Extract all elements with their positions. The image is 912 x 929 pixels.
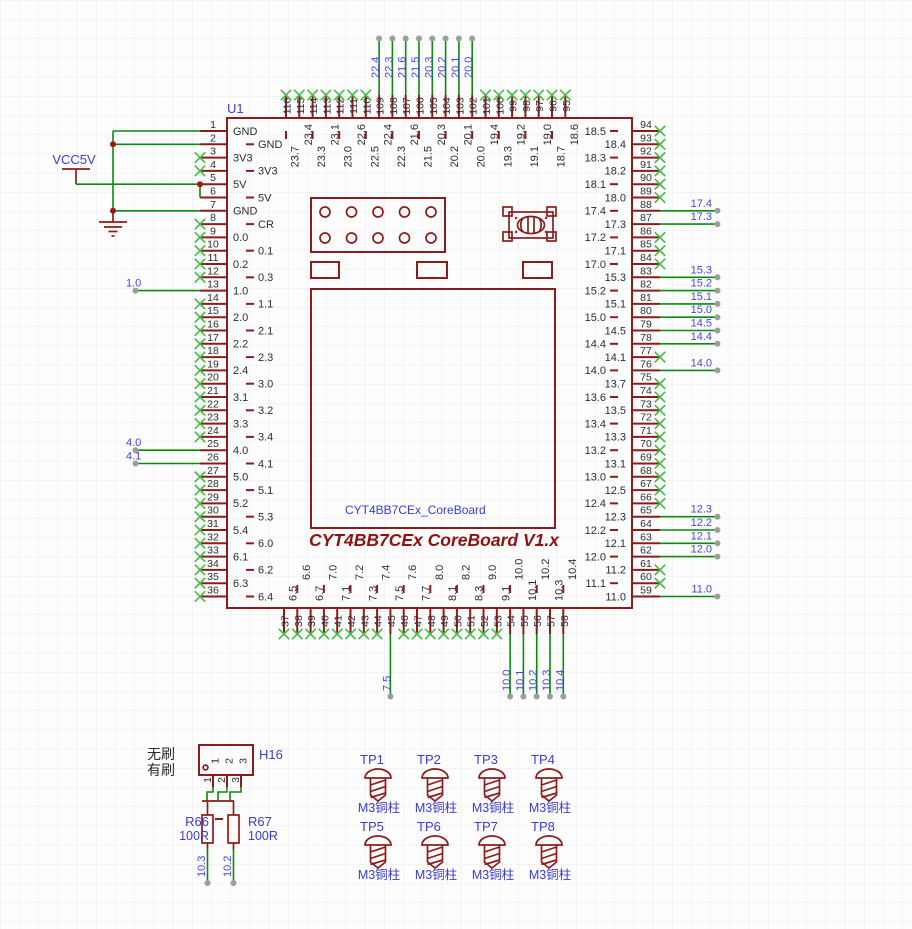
pin-name: 15.2 bbox=[585, 285, 606, 297]
wire-end-dot bbox=[416, 36, 422, 42]
pin-name: 20.0 bbox=[476, 146, 488, 167]
pin-number: 61 bbox=[640, 558, 652, 570]
pin-number: 78 bbox=[640, 332, 652, 344]
pin-number: 6 bbox=[210, 186, 216, 198]
pin-name: 17.2 bbox=[585, 232, 606, 244]
pin-number: 15 bbox=[207, 305, 219, 317]
pin-number: 28 bbox=[207, 478, 219, 490]
net-label-12.2: 12.2 bbox=[691, 517, 712, 529]
testpoint-ref: TP1 bbox=[360, 752, 384, 767]
pin-number: 92 bbox=[640, 146, 652, 158]
pin-name: 12.1 bbox=[605, 538, 626, 550]
pin-name: 0.2 bbox=[233, 259, 248, 271]
pin-name: CR bbox=[258, 219, 274, 231]
pin-number: 105 bbox=[428, 97, 440, 115]
pin-number: 100 bbox=[494, 97, 506, 115]
testpoint-ref: TP7 bbox=[474, 819, 498, 834]
pin-number: 23 bbox=[207, 412, 219, 424]
pin-name: 18.0 bbox=[605, 192, 626, 204]
pin-name: 13.2 bbox=[585, 445, 606, 457]
pin-number: 91 bbox=[640, 159, 652, 171]
pin-name: 18.1 bbox=[585, 179, 606, 191]
pin-number: 84 bbox=[640, 252, 652, 264]
pin-name: 19.3 bbox=[502, 146, 514, 167]
pin-name: 23.7 bbox=[290, 146, 302, 167]
pin-number: 16 bbox=[207, 319, 219, 331]
pin-number: 87 bbox=[640, 212, 652, 224]
pin-number: 96 bbox=[548, 100, 560, 112]
pin-number: 50 bbox=[452, 615, 464, 627]
pin-name: 7.0 bbox=[327, 565, 339, 580]
pin-number: 1 bbox=[210, 119, 216, 131]
testpoint-value: M3铜柱 bbox=[472, 800, 514, 815]
pin-number: 37 bbox=[280, 615, 292, 627]
net-label-14.5: 14.5 bbox=[691, 318, 712, 330]
wire-end-dot bbox=[387, 694, 393, 700]
wire-end-dot bbox=[715, 288, 721, 294]
pin-name: 2.0 bbox=[233, 312, 248, 324]
pin-number: 113 bbox=[321, 97, 333, 114]
pin-name: 15.3 bbox=[605, 272, 626, 284]
wire-end-dot bbox=[715, 554, 721, 560]
pin-name: 12.5 bbox=[605, 485, 626, 497]
pin-number: 41 bbox=[333, 615, 345, 627]
pin-name: GND bbox=[233, 126, 258, 138]
net-label-17.3: 17.3 bbox=[691, 211, 712, 223]
wire-end-dot bbox=[715, 301, 721, 307]
pin-number: 107 bbox=[401, 97, 413, 115]
pin-name: 7.6 bbox=[407, 565, 419, 580]
pin-name: 0.3 bbox=[258, 272, 273, 284]
net-label-10.2: 10.2 bbox=[528, 670, 540, 691]
chip-ref[interactable]: U1 bbox=[227, 101, 244, 116]
pin-number: 80 bbox=[640, 305, 652, 317]
wire-end-dot bbox=[520, 694, 526, 700]
pin-number: 13 bbox=[207, 279, 219, 291]
schematic-sheet: 1GND2GND33V343V355V65V7GND8CR90.0100.111… bbox=[0, 0, 912, 929]
resistor-ref: R66 bbox=[185, 814, 209, 829]
connector-pin-name: 3 bbox=[238, 758, 250, 764]
wire-end-dot bbox=[715, 514, 721, 520]
pin-number: 75 bbox=[640, 372, 652, 384]
pin-name: 13.6 bbox=[585, 392, 606, 404]
pin-number: 66 bbox=[640, 491, 652, 503]
pin-name: 6.4 bbox=[258, 591, 273, 603]
chip-title: CYT4BB7CEx CoreBoard V1.x bbox=[309, 530, 560, 550]
net-label-20.1: 20.1 bbox=[450, 57, 462, 78]
pin-name: 14.5 bbox=[605, 325, 626, 337]
testpoint-ref: TP6 bbox=[417, 819, 441, 834]
pin-number: 44 bbox=[373, 615, 385, 627]
pin-name: 2.1 bbox=[258, 325, 273, 337]
pin-name: 13.7 bbox=[605, 379, 626, 391]
pin-number: 89 bbox=[640, 186, 652, 198]
pin-number: 35 bbox=[207, 571, 219, 583]
resistor-ref: R67 bbox=[248, 814, 272, 829]
pin-number: 51 bbox=[466, 615, 478, 627]
pin-number: 74 bbox=[640, 385, 652, 397]
pin-name: 15.0 bbox=[585, 312, 606, 324]
pin-number: 4 bbox=[210, 159, 216, 171]
pin-number: 9 bbox=[210, 225, 216, 237]
pin-number: 101 bbox=[481, 97, 493, 115]
pin-name: 10.0 bbox=[514, 559, 526, 580]
pin-name: 12.2 bbox=[585, 525, 606, 537]
pin-number: 65 bbox=[640, 505, 652, 517]
pin-name: 22.5 bbox=[369, 146, 381, 167]
pin-number: 5 bbox=[210, 172, 216, 184]
pin-name: 5V bbox=[233, 179, 247, 191]
pin-number: 36 bbox=[207, 585, 219, 597]
pin-name: 21.5 bbox=[423, 146, 435, 167]
pin-number: 34 bbox=[207, 558, 219, 570]
pin-name: 17.3 bbox=[605, 219, 626, 231]
net-label-20.0: 20.0 bbox=[463, 57, 475, 78]
pin-name: 14.1 bbox=[605, 352, 626, 364]
wire-end-dot bbox=[715, 328, 721, 334]
pin-name: 10.4 bbox=[567, 559, 579, 580]
net-label-21.5: 21.5 bbox=[410, 57, 422, 78]
net-label-15.2: 15.2 bbox=[691, 278, 712, 290]
pin-name: 12.0 bbox=[585, 551, 606, 563]
pin-name: 5.3 bbox=[258, 512, 273, 524]
pin-name: 3.2 bbox=[258, 405, 273, 417]
testpoint-value: M3铜柱 bbox=[415, 867, 457, 882]
wire-end-dot bbox=[715, 208, 721, 214]
pin-name: 3V3 bbox=[233, 152, 253, 164]
net-label-10.4: 10.4 bbox=[554, 670, 566, 691]
pin-number: 110 bbox=[361, 97, 373, 114]
connector-pin-name: 2 bbox=[224, 758, 236, 764]
wire-end-dot bbox=[547, 694, 553, 700]
testpoint-ref: TP3 bbox=[474, 752, 498, 767]
pin-number: 30 bbox=[207, 505, 219, 517]
pin-number: 59 bbox=[640, 585, 652, 597]
pin-number: 108 bbox=[388, 97, 400, 115]
net-label-11.0: 11.0 bbox=[691, 584, 712, 596]
pin-number: 109 bbox=[375, 97, 387, 115]
connector-pin-number: 3 bbox=[230, 777, 242, 783]
pin-number: 33 bbox=[207, 545, 219, 557]
pin-number: 81 bbox=[640, 292, 652, 304]
pin-name: 0.0 bbox=[233, 232, 248, 244]
pin-name: 18.4 bbox=[605, 139, 626, 151]
pin-name: 23.0 bbox=[343, 146, 355, 167]
pin-number: 21 bbox=[207, 385, 219, 397]
pin-number: 115 bbox=[295, 97, 307, 114]
pin-name: 18.6 bbox=[569, 124, 581, 145]
pin-number: 94 bbox=[640, 119, 652, 131]
pin-number: 99 bbox=[508, 100, 520, 112]
pin-name: 10.2 bbox=[540, 559, 552, 580]
wire-end-dot bbox=[715, 221, 721, 227]
pin-name: 0.1 bbox=[258, 246, 273, 258]
pin-number: 102 bbox=[468, 97, 480, 115]
pin-name: 8.0 bbox=[434, 565, 446, 580]
wire-end-dot bbox=[205, 880, 211, 886]
pin-number: 14 bbox=[207, 292, 219, 304]
pin-name: 17.0 bbox=[585, 259, 606, 271]
wire-end-dot bbox=[715, 341, 721, 347]
pin-name: 3.3 bbox=[233, 418, 248, 430]
pin-name: 1.0 bbox=[233, 285, 248, 297]
pin-number: 111 bbox=[348, 98, 360, 114]
pin-number: 53 bbox=[492, 615, 504, 627]
testpoint-ref: TP2 bbox=[417, 752, 441, 767]
pin-name: 14.4 bbox=[585, 339, 606, 351]
pin-name: 12.4 bbox=[585, 498, 606, 510]
pin-number: 39 bbox=[306, 615, 318, 627]
pin-number: 85 bbox=[640, 239, 652, 251]
pin-number: 3 bbox=[210, 146, 216, 158]
pin-name: 5.4 bbox=[233, 525, 248, 537]
wire-end-dot bbox=[469, 36, 475, 42]
pin-name: 17.1 bbox=[605, 246, 626, 258]
pin-name: 2.3 bbox=[258, 352, 273, 364]
testpoint-value: M3铜柱 bbox=[358, 800, 400, 815]
pin-number: 67 bbox=[640, 478, 652, 490]
connector-pin-number: 1 bbox=[202, 777, 214, 783]
pin-number: 95 bbox=[561, 100, 573, 112]
pin-number: 114 bbox=[308, 97, 320, 114]
pin-number: 83 bbox=[640, 265, 652, 277]
pin-name: 13.5 bbox=[605, 405, 626, 417]
pin-number: 63 bbox=[640, 531, 652, 543]
chip-inner-label: CYT4BB7CEx_CoreBoard bbox=[345, 503, 486, 517]
pin-name: 7.2 bbox=[354, 565, 366, 580]
connector-ref[interactable]: H16 bbox=[259, 747, 283, 762]
pin-number: 71 bbox=[640, 425, 652, 437]
pin-number: 24 bbox=[207, 425, 219, 437]
pin-name: 18.5 bbox=[585, 126, 606, 138]
pin-name: 11.2 bbox=[605, 565, 626, 577]
testpoint-value: M3铜柱 bbox=[529, 867, 571, 882]
pin-number: 32 bbox=[207, 531, 219, 543]
pin-number: 22 bbox=[207, 398, 219, 410]
pin-name: 13.3 bbox=[605, 432, 626, 444]
net-label-14.4: 14.4 bbox=[691, 331, 712, 343]
pin-name: 2.2 bbox=[233, 339, 248, 351]
wire-end-dot bbox=[389, 36, 395, 42]
pin-name: 19.1 bbox=[529, 146, 541, 167]
net-label-7.5: 7.5 bbox=[381, 676, 393, 691]
pin-number: 58 bbox=[559, 615, 571, 627]
pin-name: 1.1 bbox=[258, 299, 273, 311]
pin-number: 86 bbox=[640, 225, 652, 237]
net-label-15.1: 15.1 bbox=[691, 291, 712, 303]
pin-number: 106 bbox=[415, 97, 427, 115]
pin-name: 5.2 bbox=[233, 498, 248, 510]
pin-number: 45 bbox=[386, 615, 398, 627]
connector-pin-number: 2 bbox=[216, 777, 228, 783]
net-label-15.0: 15.0 bbox=[691, 304, 712, 316]
pin-name: 6.0 bbox=[258, 538, 273, 550]
pin-number: 29 bbox=[207, 491, 219, 503]
pin-name: 11.0 bbox=[605, 591, 626, 603]
pin-number: 7 bbox=[210, 199, 216, 211]
testpoint-ref: TP8 bbox=[531, 819, 555, 834]
testpoint-value: M3铜柱 bbox=[529, 800, 571, 815]
pin-number: 77 bbox=[640, 345, 652, 357]
net-label-20.2: 20.2 bbox=[437, 57, 449, 78]
wire-end-dot bbox=[403, 36, 409, 42]
wire-end-dot bbox=[715, 594, 721, 600]
pin-number: 54 bbox=[506, 615, 518, 627]
wire-end-dot bbox=[231, 880, 237, 886]
pin-number: 88 bbox=[640, 199, 652, 211]
pin-number: 49 bbox=[439, 615, 451, 627]
pin-name: 23.3 bbox=[316, 146, 328, 167]
pin-number: 64 bbox=[640, 518, 652, 530]
pin-number: 72 bbox=[640, 412, 652, 424]
pin-number: 26 bbox=[207, 452, 219, 464]
pin-number: 62 bbox=[640, 545, 652, 557]
net-label-12.3: 12.3 bbox=[691, 504, 712, 516]
pin-name: GND bbox=[258, 139, 283, 151]
net-label-10.3: 10.3 bbox=[541, 670, 553, 691]
wire-end-dot bbox=[715, 540, 721, 546]
wire-end-dot bbox=[456, 36, 462, 42]
pin-number: 97 bbox=[534, 100, 546, 112]
testpoint-value: M3铜柱 bbox=[472, 867, 514, 882]
pin-number: 43 bbox=[359, 615, 371, 627]
pin-number: 79 bbox=[640, 319, 652, 331]
pin-number: 69 bbox=[640, 452, 652, 464]
pin-number: 82 bbox=[640, 279, 652, 291]
motor-label-brushed: 有刷 bbox=[147, 762, 175, 778]
wire-end-dot bbox=[429, 36, 435, 42]
pin-name: 18.7 bbox=[556, 146, 568, 167]
resistor-value: 100R bbox=[179, 829, 209, 843]
pin-number: 48 bbox=[426, 615, 438, 627]
pin-name: 3.1 bbox=[233, 392, 248, 404]
pin-number: 46 bbox=[399, 615, 411, 627]
wire-end-dot bbox=[715, 367, 721, 373]
pin-number: 11 bbox=[208, 252, 219, 264]
testpoint-value: M3铜柱 bbox=[358, 867, 400, 882]
net-label-20.3: 20.3 bbox=[423, 57, 435, 78]
pin-name: 6.6 bbox=[301, 565, 313, 580]
net-label-21.6: 21.6 bbox=[397, 57, 409, 78]
net-label-10.0: 10.0 bbox=[501, 670, 513, 691]
pin-number: 25 bbox=[207, 438, 219, 450]
net-label-22.3: 22.3 bbox=[383, 57, 395, 78]
wire-end-dot bbox=[534, 694, 540, 700]
pin-number: 42 bbox=[346, 615, 358, 627]
pin-number: 19 bbox=[207, 358, 219, 370]
wire-end-dot bbox=[715, 274, 721, 280]
pin-number: 98 bbox=[521, 100, 533, 112]
pin-name: 5.0 bbox=[233, 472, 248, 484]
pin-name: 6.3 bbox=[233, 578, 248, 590]
pin-number: 40 bbox=[319, 615, 331, 627]
net-label-15.3: 15.3 bbox=[691, 264, 712, 276]
pin-name: 3V3 bbox=[258, 166, 278, 178]
pin-number: 93 bbox=[640, 132, 652, 144]
pin-name: 7.4 bbox=[381, 565, 393, 580]
pin-number: 31 bbox=[207, 518, 219, 530]
pin-number: 27 bbox=[207, 465, 219, 477]
pin-number: 73 bbox=[640, 398, 652, 410]
pin-name: 15.1 bbox=[605, 299, 626, 311]
wire-end-dot bbox=[560, 694, 566, 700]
resistor-value: 100R bbox=[248, 829, 278, 843]
pin-number: 76 bbox=[640, 358, 652, 370]
pin-number: 90 bbox=[640, 172, 652, 184]
pin-name: 11.1 bbox=[585, 578, 606, 590]
net-label-12.0: 12.0 bbox=[691, 544, 712, 556]
net-label-10.3: 10.3 bbox=[196, 856, 208, 877]
wire-end-dot bbox=[715, 527, 721, 533]
pin-number: 52 bbox=[479, 615, 491, 627]
pin-name: 20.2 bbox=[449, 146, 461, 167]
pin-number: 20 bbox=[207, 372, 219, 384]
net-label-22.4: 22.4 bbox=[370, 57, 382, 78]
wire-end-dot bbox=[443, 36, 449, 42]
pin-name: 5.1 bbox=[258, 485, 273, 497]
pin-name: 3.4 bbox=[258, 432, 273, 444]
wire-end-dot bbox=[376, 36, 382, 42]
pin-name: 9.0 bbox=[487, 565, 499, 580]
wire-end-dot bbox=[715, 314, 721, 320]
pin-number: 68 bbox=[640, 465, 652, 477]
pin-number: 8 bbox=[210, 212, 216, 224]
pin-number: 12 bbox=[207, 265, 219, 277]
pin-name: 4.1 bbox=[258, 458, 273, 470]
pin-name: 8.2 bbox=[460, 565, 472, 580]
pin-name: 14.0 bbox=[585, 365, 606, 377]
pin-number: 2 bbox=[210, 132, 216, 144]
testpoint-ref: TP5 bbox=[360, 819, 384, 834]
motor-label-brushless: 无刷 bbox=[147, 746, 175, 762]
pin-number: 60 bbox=[640, 571, 652, 583]
pin-number: 56 bbox=[532, 615, 544, 627]
pin-number: 103 bbox=[454, 97, 466, 115]
pin-name: 18.3 bbox=[585, 152, 606, 164]
net-label-4.0: 4.0 bbox=[126, 437, 141, 449]
vcc-net-label[interactable]: VCC5V bbox=[52, 152, 96, 167]
pin-name: 22.3 bbox=[396, 146, 408, 167]
pin-name: 18.2 bbox=[605, 166, 626, 178]
pin-number: 18 bbox=[207, 345, 219, 357]
pin-number: 104 bbox=[441, 97, 453, 115]
pin-number: 116 bbox=[282, 97, 294, 114]
pin-name: 4.0 bbox=[233, 445, 248, 457]
pin-number: 17 bbox=[207, 332, 219, 344]
net-label-1.0: 1.0 bbox=[126, 278, 141, 290]
pin-number: 70 bbox=[640, 438, 652, 450]
net-label-4.1: 4.1 bbox=[126, 451, 141, 463]
pin-name: 6.2 bbox=[258, 565, 273, 577]
testpoint-value: M3铜柱 bbox=[415, 800, 457, 815]
schematic-canvas: 1GND2GND33V343V355V65V7GND8CR90.0100.111… bbox=[0, 0, 912, 929]
wire-end-dot bbox=[507, 694, 513, 700]
pin-number: 55 bbox=[519, 615, 531, 627]
pin-name: 13.4 bbox=[585, 418, 606, 430]
net-label-12.1: 12.1 bbox=[691, 530, 712, 542]
pin-name: 5V bbox=[258, 192, 272, 204]
net-label-10.1: 10.1 bbox=[514, 670, 526, 691]
pin-name: 12.3 bbox=[605, 512, 626, 524]
pin-name: 3.0 bbox=[258, 379, 273, 391]
pin-number: 10 bbox=[207, 239, 219, 251]
pin-number: 47 bbox=[413, 615, 425, 627]
testpoint-ref: TP4 bbox=[531, 752, 555, 767]
pin-name: 6.1 bbox=[233, 551, 248, 563]
pin-name: 13.1 bbox=[605, 458, 626, 470]
pin-number: 38 bbox=[293, 615, 305, 627]
junction-dot bbox=[197, 181, 203, 187]
